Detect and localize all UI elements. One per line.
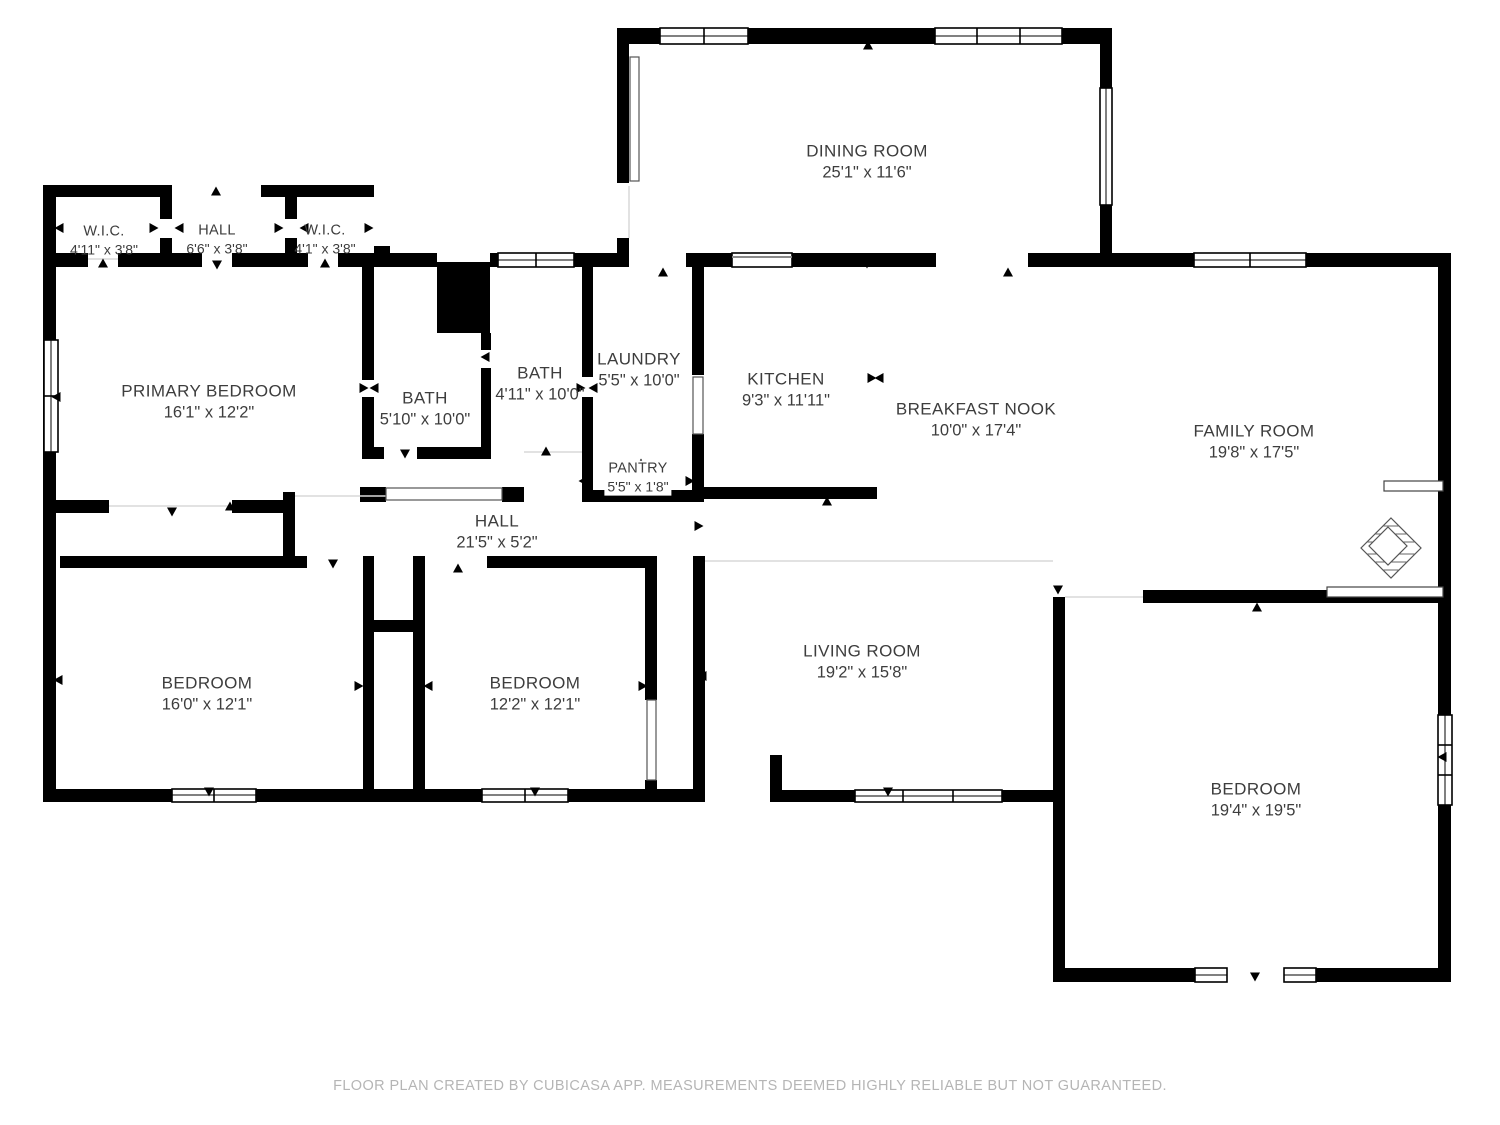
- room-label-primary: PRIMARY BEDROOM16'1" x 12'2": [121, 382, 296, 423]
- room-label-bath1: BATH5'10" x 10'0": [380, 389, 471, 430]
- room-label-bed2: BEDROOM12'2" x 12'1": [490, 674, 581, 715]
- room-label-living: LIVING ROOM19'2" x 15'8": [803, 642, 921, 683]
- room-label-pantry: PANTRY5'5" x 1'8": [604, 461, 671, 496]
- footer-disclaimer: FLOOR PLAN CREATED BY CUBICASA APP. MEAS…: [0, 1078, 1500, 1094]
- patio-door-leaf-icon: [630, 57, 639, 181]
- kitchen-pass-frame: [693, 377, 703, 434]
- room-label-hall-mid: HALL21'5" x 5'2": [456, 512, 537, 553]
- fireplace-icon: [1355, 518, 1427, 578]
- room-label-wic-right: W.I.C.4'1" x 3'8": [294, 223, 355, 258]
- hall-cased-opening: [386, 488, 502, 500]
- room-label-family: FAMILY ROOM19'8" x 17'5": [1194, 422, 1315, 463]
- walls-layer: [43, 28, 1451, 982]
- room-label-hall-top: HALL6'6" x 3'8": [186, 223, 247, 258]
- room-label-wic-left: W.I.C.4'11" x 3'8": [70, 224, 138, 259]
- room-label-nook: BREAKFAST NOOK10'0" x 17'4": [896, 400, 1056, 441]
- floor-plan: W.I.C.4'11" x 3'8" HALL6'6" x 3'8" W.I.C…: [0, 0, 1500, 1125]
- room-label-laundry: LAUNDRY5'5" x 10'0": [597, 350, 681, 391]
- room-label-bed1: BEDROOM16'0" x 12'1": [162, 674, 253, 715]
- room-label-bed3: BEDROOM19'4" x 19'5": [1211, 780, 1302, 821]
- room-label-bath2: BATH4'11" x 10'0": [495, 364, 584, 405]
- bedroom-door-frame: [647, 700, 656, 780]
- room-label-kitchen: KITCHEN9'3" x 11'11": [742, 370, 830, 411]
- floor-plan-drawing: [0, 0, 1500, 1125]
- room-label-dining: DINING ROOM25'1" x 11'6": [806, 142, 928, 183]
